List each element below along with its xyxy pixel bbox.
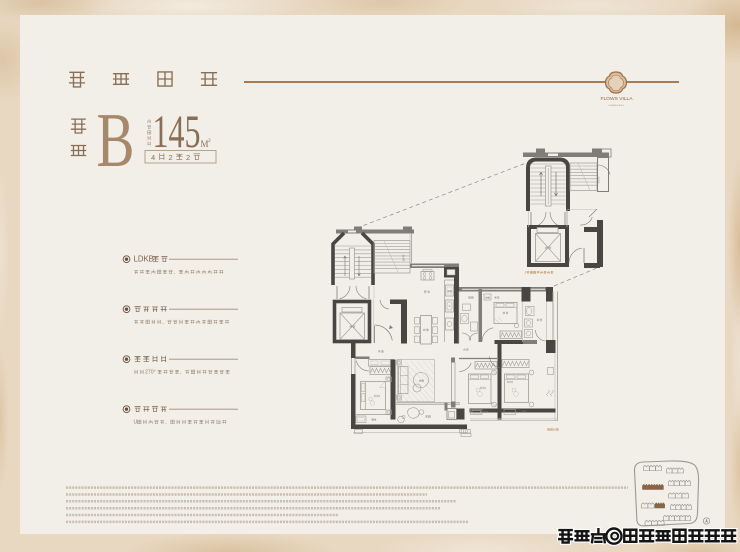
svg-text:J: J (524, 270, 526, 274)
svg-text:270°: 270° (145, 370, 156, 376)
svg-text:2: 2 (208, 138, 211, 144)
svg-text:2: 2 (169, 153, 173, 162)
svg-text:2: 2 (186, 153, 190, 162)
svg-text:B: B (97, 98, 135, 183)
svg-text:,: , (180, 370, 181, 376)
svg-text:LDKB: LDKB (134, 255, 154, 264)
svg-text:145: 145 (153, 105, 201, 158)
svg-text:,: , (174, 270, 175, 276)
svg-text:2870: 2870 (402, 254, 406, 261)
svg-text:CHANGSHU: CHANGSHU (608, 104, 625, 107)
svg-text:4: 4 (151, 153, 155, 162)
svg-text:,: , (162, 320, 163, 326)
svg-text:U: U (134, 420, 138, 426)
svg-text:,: , (165, 420, 166, 426)
svg-text:FLOWS VILLA: FLOWS VILLA (600, 96, 633, 102)
